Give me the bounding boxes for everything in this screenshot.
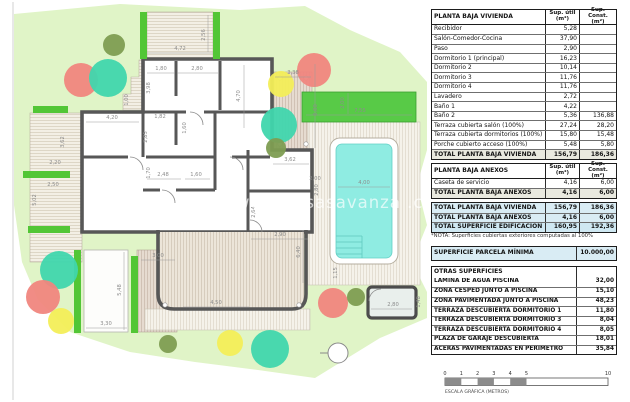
table-row: TERRAZA DESCUBIERTA DORMITORIO 48,05 [432,325,616,335]
row-value: 5,48 [545,141,579,150]
table-row: ACERAS PAVIMENTADAS EN PERÍMETRO35,84 [432,345,616,355]
row-label: Caseta de servicio [432,179,545,189]
table-row: ZONA PAVIMENTADA JUNTO A PISCINA48,23 [432,297,616,307]
table-row: TOTAL PLANTA BAJA VIVIENDA156,79186,36 [432,149,616,159]
row-label: Paso [432,45,545,54]
table-planta-baja-anexos: PLANTA BAJA ANEXOS Sup. útil (m²) Sup. C… [431,163,617,199]
table-row: Terraza cubierta salón (100%)27,2428,20 [432,120,616,130]
row-label: TOTAL SUPERFICIE EDIFICACIÓN [432,223,545,232]
dimension-label: 5,48 [117,284,123,296]
row-value: 8,04 [576,317,616,326]
table-otras-superficies: OTRAS SUPERFICIES LÁMINA DE AGUA PISCINA… [431,266,617,355]
dimension-label: 1,48 [416,296,422,308]
olive-tree [159,335,177,353]
scale-bar: 01234510ESCALA GRÁFICA (METROS) [443,371,611,395]
dimension-label: 2,00 [309,176,321,182]
table-title: PLANTA BAJA VIVIENDA [432,10,545,24]
dimension-label: 1,80 [155,66,167,72]
row-label: Salón-Comedor-Cocina [432,35,545,44]
row-value: 4,16 [545,189,579,198]
table-totals-summary: TOTAL PLANTA BAJA VIVIENDA156,79186,36TO… [431,202,617,233]
teal-tree [261,107,297,143]
table-title: PLANTA BAJA ANEXOS [432,164,545,178]
dimension-label: 4,50 [210,300,222,306]
dimension-label: 1,60 [182,122,188,134]
row-value: 160,95 [545,223,579,232]
table-row: Dormitorio 1 (principal)16,23 [432,53,616,63]
row-value: 2,90 [545,45,579,54]
table-row: Dormitorio 411,76 [432,82,616,92]
olive-tree [103,34,125,56]
dimension-label: 2,85 [143,131,149,143]
row-value: 11,76 [545,83,579,92]
olive-tree [266,138,286,158]
row-value [579,93,616,102]
dimension-label: 4,70 [236,90,242,102]
dimension-label: 2,90 [274,232,286,238]
scale-label: ESCALA GRÁFICA (METROS) [445,388,509,395]
row-value: 28,20 [579,121,616,130]
table-header: PLANTA BAJA ANEXOS Sup. útil (m²) Sup. C… [432,164,616,179]
dimension-label: 3,30 [100,321,112,327]
row-value: 10,14 [545,64,579,73]
scale-tick: 1 [460,371,463,377]
col-sup-util: Sup. útil (m²) [545,164,579,178]
red-tree [318,288,348,318]
row-label: Baño 2 [432,112,545,121]
table-title: OTRAS SUPERFICIES [432,267,576,278]
parcela-value: 10.000,00 [576,247,616,260]
row-label: Baño 1 [432,102,545,111]
red-tree [297,53,331,87]
dimension-label: 6,40 [296,246,302,258]
row-value: 136,88 [579,112,616,121]
row-value: 6,00 [579,189,616,198]
table-row: Recibidor5,28 [432,25,616,35]
dimension-label: 1,15 [333,267,339,279]
row-value: 6,00 [579,179,616,189]
row-value: 156,79 [545,150,579,159]
dimension-label: 1,00 [124,94,130,106]
row-value: 156,79 [545,203,579,213]
dimension-label: 2,80 [387,302,399,308]
teal-tree [89,59,127,97]
row-value [579,64,616,73]
row-value: 5,28 [545,25,579,35]
table-row: PLAZA DE GARAJE DESCUBIERTA18,01 [432,335,616,345]
row-label: TERRAZA DESCUBIERTA DORMITORIO 1 [432,307,576,316]
col-sup-const: Sup. Const. (m²) [579,164,616,178]
row-label: Porche cubierto acceso (100%) [432,141,545,150]
row-value [579,73,616,82]
row-value [579,54,616,63]
row-value: 48,23 [576,298,616,307]
row-value [579,45,616,54]
table-row: Dormitorio 311,76 [432,72,616,82]
dimension-label: 6,00 [313,104,319,116]
dimension-label: 7,55 [354,108,366,114]
grass-zone [302,92,416,122]
table-row: Baño 14,22 [432,101,616,111]
dimension-label: 2,50 [47,182,59,188]
table-row: Dormitorio 210,14 [432,63,616,73]
table-row: LÁMINA DE AGUA PISCINA32,00 [432,278,616,288]
scale-tick: 5 [525,371,528,377]
dimension-label: 4,72 [174,46,186,52]
table-header: PLANTA BAJA VIVIENDA Sup. útil (m²) Sup.… [432,10,616,25]
row-label: Dormitorio 3 [432,73,545,82]
dimension-label: 4,20 [106,115,118,121]
dimension-label: 5,02 [32,194,38,206]
row-label: TOTAL PLANTA BAJA ANEXOS [432,214,545,223]
dimension-label: 3,00 [152,253,164,259]
olive-tree [347,288,365,306]
dimension-label: 1,60 [190,172,202,178]
dimension-label: 3,98 [146,82,152,94]
dimension-label: 3,62 [284,157,296,163]
row-label: Dormitorio 4 [432,83,545,92]
row-value: 186,36 [579,150,616,159]
table-row: TOTAL PLANTA BAJA ANEXOS4,166,00 [432,188,616,198]
table-row: TOTAL PLANTA BAJA ANEXOS4,166,00 [432,213,616,223]
red-tree [26,280,60,314]
row-label: Lavadero [432,93,545,102]
dimension-label: 3,62 [60,136,66,148]
row-value: 4,16 [545,214,579,223]
scale-tick: 0 [443,371,446,377]
table-row: TOTAL PLANTA BAJA VIVIENDA156,79186,36 [432,203,616,213]
row-value: 16,23 [545,54,579,63]
table-row: ZONA CÉSPED JUNTO A PISCINA15,10 [432,287,616,297]
row-value: 4,16 [545,179,579,189]
col-sup-util: Sup. útil (m²) [545,10,579,24]
row-value: 5,36 [545,112,579,121]
dimension-label: 2,56 [201,29,207,41]
teal-tree [251,330,289,368]
table-planta-baja-vivienda: PLANTA BAJA VIVIENDA Sup. útil (m²) Sup.… [431,9,617,160]
row-label: TOTAL PLANTA BAJA VIVIENDA [432,150,545,159]
row-value: 11,80 [576,307,616,316]
row-value: 6,00 [579,214,616,223]
row-value: 186,36 [579,203,616,213]
row-label: ZONA CÉSPED JUNTO A PISCINA [432,288,576,297]
yellow-tree [217,330,243,356]
row-value [579,102,616,111]
row-value: 27,24 [545,121,579,130]
table-row: TERRAZA DESCUBIERTA DORMITORIO 111,80 [432,306,616,316]
row-value: 15,80 [545,131,579,140]
empty-header-cell [576,267,616,278]
table-parcela-minima: SUPERFICIE PARCELA MÍNIMA 10.000,00 [431,246,617,261]
row-label: ACERAS PAVIMENTADAS EN PERÍMETRO [432,346,576,355]
dimension-label: 1,82 [154,114,166,120]
dimension-label: 2,80 [191,66,203,72]
row-label: Terraza cubierta dormitorios (100%) [432,131,545,140]
table-row: SUPERFICIE PARCELA MÍNIMA 10.000,00 [432,247,616,260]
footnote: *NOTA: Superficies cubiertas exteriores … [431,233,621,239]
row-value: 35,84 [576,346,616,355]
table-row: Salón-Comedor-Cocina37,90 [432,34,616,44]
dimension-label: 1,70 [146,167,152,179]
table-row: Porche cubierto acceso (100%)5,485,80 [432,140,616,150]
row-label: Dormitorio 1 (principal) [432,54,545,63]
table-row: Baño 25,36136,88 [432,111,616,121]
table-row: Terraza cubierta dormitorios (100%)15,80… [432,130,616,140]
dimension-label: 2,00 [340,97,346,109]
table-row: TERRAZA DESCUBIERTA DORMITORIO 38,04 [432,316,616,326]
dimension-label: 3,38 [287,70,299,76]
table-header: OTRAS SUPERFICIES [432,267,616,278]
row-label: TOTAL PLANTA BAJA ANEXOS [432,189,545,198]
scale-tick: 4 [509,371,512,377]
scale-tick: 10 [605,371,611,377]
row-value [579,25,616,35]
row-label: PLAZA DE GARAJE DESCUBIERTA [432,336,576,345]
row-label: Recibidor [432,25,545,35]
watermark: www.casasavanza .com [236,193,452,212]
row-label: LÁMINA DE AGUA PISCINA [432,278,576,288]
row-value: 192,36 [579,223,616,232]
dimension-label: 2,48 [157,172,169,178]
row-label: TERRAZA DESCUBIERTA DORMITORIO 4 [432,326,576,335]
yellow-tree [48,308,74,334]
row-value: 15,10 [576,288,616,297]
row-value: 18,01 [576,336,616,345]
perimeter-paving [145,309,310,330]
row-label: TOTAL PLANTA BAJA VIVIENDA [432,203,545,213]
row-value: 4,22 [545,102,579,111]
dimension-label: 2,20 [49,160,61,166]
row-value: 15,48 [579,131,616,140]
row-value: 2,72 [545,93,579,102]
row-value [579,35,616,44]
row-value: 37,90 [545,35,579,44]
row-label: Dormitorio 2 [432,64,545,73]
table-row: Lavadero2,72 [432,92,616,102]
row-value: 11,76 [545,73,579,82]
col-sup-const: Sup. Const. (m²) [579,10,616,24]
row-label: ZONA PAVIMENTADA JUNTO A PISCINA [432,298,576,307]
parcela-label: SUPERFICIE PARCELA MÍNIMA [432,247,576,260]
row-label: TERRAZA DESCUBIERTA DORMITORIO 3 [432,317,576,326]
row-value: 8,05 [576,326,616,335]
row-label: Terraza cubierta salón (100%) [432,121,545,130]
row-value [579,83,616,92]
table-row: TOTAL SUPERFICIE EDIFICACIÓN160,95192,36 [432,222,616,232]
row-value: 32,00 [576,278,616,288]
dimension-label: 4,00 [358,180,370,186]
table-row: Paso2,90 [432,44,616,54]
site-plan-sheet: 4,722,561,802,803,984,701,821,604,202,85… [0,0,630,402]
row-value: 5,80 [579,141,616,150]
table-row: Caseta de servicio4,166,00 [432,179,616,189]
scale-tick: 3 [492,371,495,377]
living-covered-terrace [160,232,304,308]
scale-tick: 2 [476,371,479,377]
